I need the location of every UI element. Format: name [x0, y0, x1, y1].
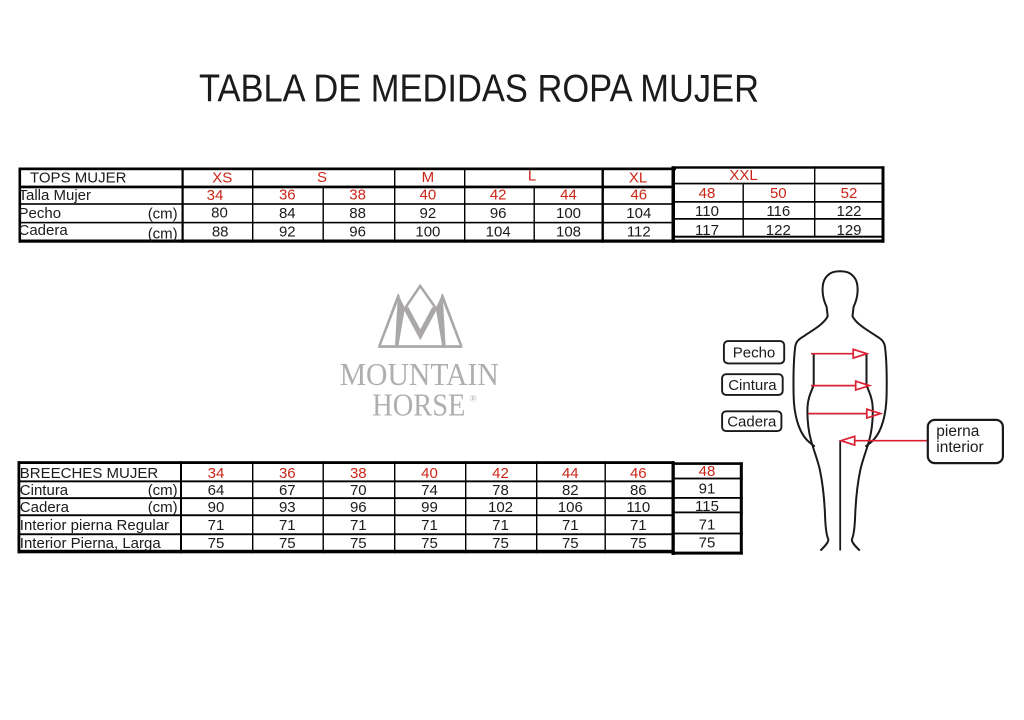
svg-text:48: 48	[699, 463, 716, 480]
svg-text:46: 46	[630, 187, 647, 204]
svg-text:75: 75	[279, 535, 296, 552]
svg-text:96: 96	[490, 205, 507, 222]
svg-text:92: 92	[279, 223, 296, 240]
svg-text:38: 38	[349, 187, 366, 204]
svg-text:75: 75	[492, 535, 509, 552]
svg-text:Interior pierna Regular: Interior pierna Regular	[20, 517, 169, 534]
svg-text:93: 93	[279, 499, 296, 516]
svg-text:36: 36	[279, 465, 296, 482]
svg-text:112: 112	[627, 223, 651, 240]
svg-text:Cadera: Cadera	[727, 413, 777, 430]
svg-text:(cm): (cm)	[148, 226, 178, 243]
svg-text:88: 88	[212, 223, 229, 240]
svg-text:91: 91	[699, 480, 716, 497]
svg-text:115: 115	[695, 498, 719, 515]
svg-text:82: 82	[562, 482, 579, 499]
svg-text:40: 40	[420, 187, 437, 204]
svg-text:(cm): (cm)	[148, 499, 178, 516]
svg-text:HORSE: HORSE	[372, 388, 465, 423]
svg-text:71: 71	[630, 517, 647, 534]
svg-text:Pecho: Pecho	[19, 205, 62, 222]
svg-text:71: 71	[492, 517, 509, 534]
svg-text:104: 104	[486, 223, 511, 240]
svg-text:102: 102	[488, 499, 513, 516]
svg-text:122: 122	[836, 203, 861, 220]
svg-text:78: 78	[492, 482, 509, 499]
svg-text:99: 99	[421, 499, 438, 516]
svg-text:Cintura: Cintura	[20, 482, 69, 499]
svg-text:104: 104	[626, 205, 651, 222]
svg-text:34: 34	[207, 187, 224, 204]
svg-text:42: 42	[490, 187, 507, 204]
svg-text:71: 71	[350, 517, 367, 534]
svg-text:92: 92	[420, 205, 437, 222]
svg-text:52: 52	[841, 185, 858, 202]
svg-text:40: 40	[421, 465, 438, 482]
svg-text:interior: interior	[936, 439, 983, 456]
svg-text:34: 34	[208, 465, 225, 482]
svg-text:75: 75	[630, 535, 647, 552]
svg-text:44: 44	[562, 465, 579, 482]
svg-text:80: 80	[211, 205, 228, 222]
svg-text:71: 71	[279, 517, 296, 534]
svg-text:L: L	[528, 168, 536, 185]
svg-text:74: 74	[421, 482, 438, 499]
svg-text:75: 75	[208, 535, 225, 552]
svg-text:M: M	[422, 169, 435, 186]
svg-text:71: 71	[208, 517, 225, 534]
svg-text:TABLA DE MEDIDAS ROPA MUJER: TABLA DE MEDIDAS ROPA MUJER	[199, 67, 759, 110]
svg-text:Pecho: Pecho	[733, 345, 776, 362]
svg-text:100: 100	[556, 205, 581, 222]
svg-text:71: 71	[699, 516, 716, 533]
svg-text:36: 36	[279, 187, 296, 204]
svg-text:75: 75	[421, 535, 438, 552]
svg-text:96: 96	[349, 223, 366, 240]
svg-text:38: 38	[350, 465, 367, 482]
svg-text:88: 88	[349, 205, 366, 222]
svg-text:44: 44	[560, 187, 577, 204]
svg-text:122: 122	[766, 222, 791, 239]
svg-text:71: 71	[562, 517, 579, 534]
svg-text:Talla Mujer: Talla Mujer	[19, 187, 92, 204]
svg-text:129: 129	[836, 222, 861, 239]
svg-text:117: 117	[695, 222, 719, 239]
svg-text:70: 70	[350, 482, 367, 499]
svg-text:106: 106	[558, 499, 583, 516]
svg-text:110: 110	[626, 499, 650, 516]
svg-text:XL: XL	[629, 170, 647, 187]
svg-text:64: 64	[208, 482, 225, 499]
svg-text:75: 75	[350, 535, 367, 552]
svg-text:75: 75	[699, 535, 716, 552]
svg-text:S: S	[317, 169, 327, 186]
svg-text:Interior Pierna, Larga: Interior Pierna, Larga	[20, 535, 162, 552]
svg-text:®: ®	[470, 394, 477, 405]
svg-text:XS: XS	[212, 170, 232, 187]
svg-text:48: 48	[699, 185, 716, 202]
svg-text:Cintura: Cintura	[728, 377, 777, 394]
svg-text:TOPS MUJER: TOPS MUJER	[30, 169, 127, 186]
svg-text:XXL: XXL	[729, 167, 757, 184]
svg-text:pierna: pierna	[936, 423, 979, 440]
svg-text:116: 116	[766, 203, 790, 220]
svg-text:100: 100	[415, 223, 440, 240]
svg-text:(cm): (cm)	[148, 482, 178, 499]
svg-text:108: 108	[556, 223, 581, 240]
svg-text:86: 86	[630, 482, 647, 499]
svg-text:96: 96	[350, 499, 367, 516]
svg-text:Cadera: Cadera	[20, 499, 70, 516]
svg-text:67: 67	[279, 482, 296, 499]
svg-text:50: 50	[770, 185, 787, 202]
svg-text:110: 110	[695, 203, 719, 220]
svg-text:BREECHES MUJER: BREECHES MUJER	[20, 465, 159, 482]
svg-text:46: 46	[630, 465, 647, 482]
svg-text:42: 42	[492, 465, 509, 482]
svg-text:(cm): (cm)	[148, 205, 178, 222]
svg-text:Cadera: Cadera	[19, 222, 69, 239]
svg-text:71: 71	[421, 517, 438, 534]
svg-text:84: 84	[279, 205, 296, 222]
svg-text:75: 75	[562, 535, 579, 552]
svg-text:90: 90	[208, 499, 225, 516]
